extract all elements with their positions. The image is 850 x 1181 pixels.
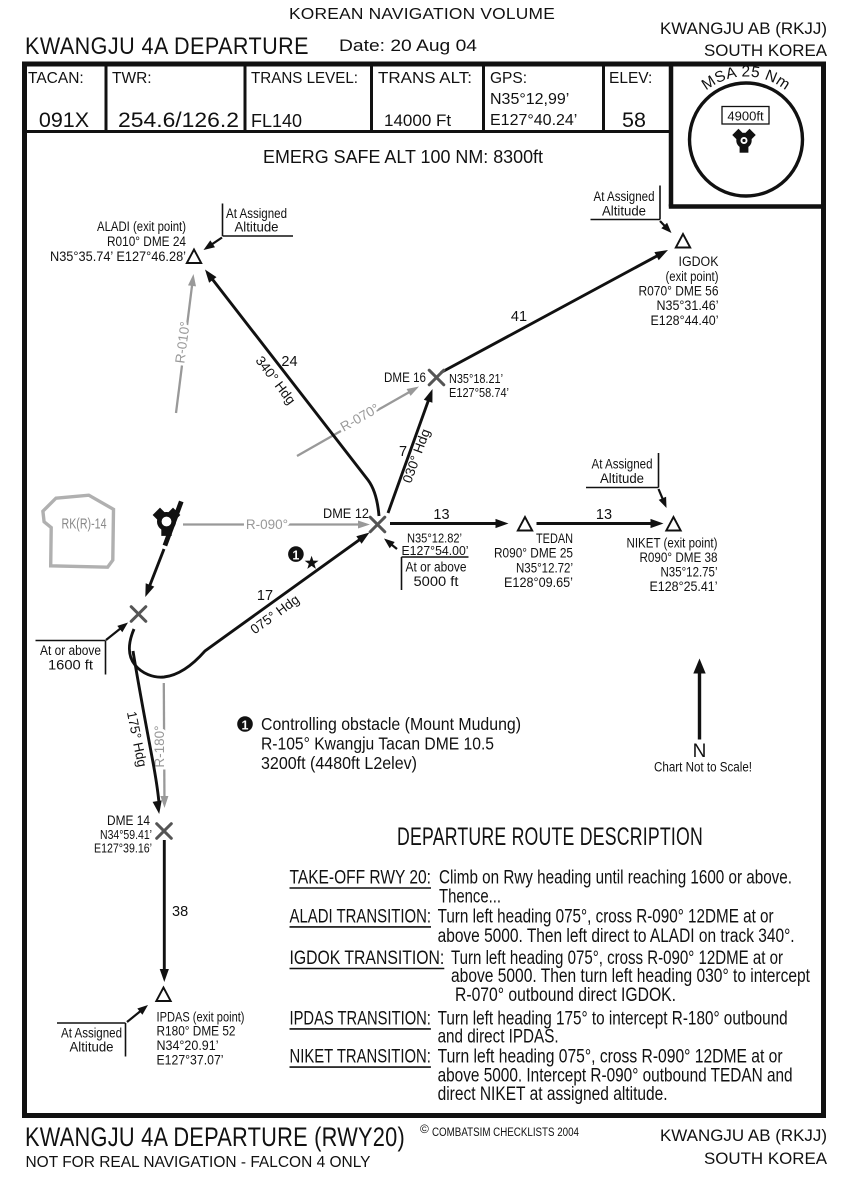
svg-text:E127°37.07’: E127°37.07’ — [157, 1053, 224, 1068]
svg-text:Altitude: Altitude — [600, 471, 644, 486]
svg-text:IPDAS (exit point): IPDAS (exit point) — [157, 1010, 245, 1025]
svg-text:N35°35.74’ E127°46.28’: N35°35.74’ E127°46.28’ — [50, 249, 186, 264]
svg-text:38: 38 — [172, 904, 188, 920]
svg-text:4900ft: 4900ft — [727, 109, 764, 124]
svg-text:N35°12.75’: N35°12.75’ — [661, 565, 718, 580]
svg-text:Altitude: Altitude — [235, 220, 279, 235]
svg-text:IPDAS TRANSITION:: IPDAS TRANSITION: — [290, 1008, 431, 1029]
svg-text:R180° DME 52: R180° DME 52 — [157, 1024, 236, 1039]
svg-text:DME 14: DME 14 — [107, 813, 150, 828]
svg-text:KWANGJU AB (RKJJ): KWANGJU AB (RKJJ) — [660, 19, 827, 38]
svg-text:E127°39.16’: E127°39.16’ — [94, 842, 152, 856]
svg-text:N35°31.46’: N35°31.46’ — [657, 298, 719, 313]
svg-text:5000 ft: 5000 ft — [414, 574, 459, 589]
svg-text:TRANS ALT:: TRANS ALT: — [378, 70, 472, 87]
svg-text:E128°25.41’: E128°25.41’ — [650, 579, 718, 594]
svg-text:©: © — [420, 1122, 429, 1136]
svg-text:ELEV:: ELEV: — [609, 70, 652, 87]
svg-text:and direct IPDAS.: and direct IPDAS. — [438, 1027, 559, 1048]
svg-text:N34°59.41’: N34°59.41’ — [100, 828, 152, 842]
svg-text:091X: 091X — [39, 108, 89, 132]
svg-text:7: 7 — [399, 444, 407, 460]
svg-text:TAKE-OFF RWY 20:: TAKE-OFF RWY 20: — [290, 868, 432, 889]
svg-text:24: 24 — [281, 354, 297, 370]
svg-text:Date: 20 Aug 04: Date: 20 Aug 04 — [339, 36, 477, 55]
svg-text:NIKET TRANSITION:: NIKET TRANSITION: — [290, 1047, 431, 1068]
svg-text:13: 13 — [433, 507, 449, 523]
svg-text:At or above: At or above — [40, 643, 101, 658]
svg-text:DME 12: DME 12 — [323, 505, 369, 521]
svg-text:RK(R)-14: RK(R)-14 — [62, 516, 107, 533]
svg-text:R-090°: R-090° — [246, 517, 288, 532]
svg-text:R-105° Kwangju Tacan DME 10.5: R-105° Kwangju Tacan DME 10.5 — [261, 734, 494, 754]
svg-text:14000 Ft: 14000 Ft — [384, 111, 451, 130]
svg-text:E127°58.74’: E127°58.74’ — [449, 386, 509, 400]
svg-text:254.6/126.2: 254.6/126.2 — [118, 108, 239, 132]
svg-text:E128°44.40’: E128°44.40’ — [651, 313, 719, 328]
svg-text:TEDAN: TEDAN — [536, 531, 573, 546]
svg-text:At Assigned: At Assigned — [61, 1026, 122, 1041]
svg-text:GPS:: GPS: — [490, 70, 527, 87]
svg-text:E127°40.24’: E127°40.24’ — [490, 112, 577, 129]
svg-text:At or above: At or above — [406, 560, 467, 575]
svg-text:FL140: FL140 — [251, 111, 302, 131]
svg-text:13: 13 — [596, 507, 612, 523]
svg-text:R010° DME 24: R010° DME 24 — [107, 234, 186, 249]
svg-text:DME 16: DME 16 — [384, 369, 426, 385]
svg-text:KOREAN NAVIGATION VOLUME: KOREAN NAVIGATION VOLUME — [289, 6, 555, 23]
svg-text:DEPARTURE ROUTE DESCRIPTION: DEPARTURE ROUTE DESCRIPTION — [397, 823, 703, 851]
svg-text:ALADI (exit point): ALADI (exit point) — [97, 219, 186, 234]
svg-text:COMBATSIM CHECKLISTS 2004: COMBATSIM CHECKLISTS 2004 — [432, 1127, 580, 1139]
svg-text:R-070° outbound direct IGDOK.: R-070° outbound direct IGDOK. — [455, 985, 676, 1006]
svg-text:Controlling obstacle (Mount Mu: Controlling obstacle (Mount Mudung) — [261, 714, 521, 734]
svg-text:direct NIKET at assigned altit: direct NIKET at assigned altitude. — [438, 1084, 668, 1105]
svg-text:SOUTH KOREA: SOUTH KOREA — [704, 1149, 828, 1168]
svg-text:Thence...: Thence... — [439, 886, 501, 907]
svg-text:58: 58 — [622, 108, 646, 132]
svg-text:KWANGJU AB (RKJJ): KWANGJU AB (RKJJ) — [660, 1126, 827, 1145]
svg-text:17: 17 — [257, 588, 273, 604]
svg-text:N35°18.21’: N35°18.21’ — [449, 372, 503, 386]
svg-text:At Assigned: At Assigned — [592, 457, 653, 472]
svg-text:1600 ft: 1600 ft — [48, 658, 93, 673]
svg-text:TWR:: TWR: — [112, 70, 152, 87]
svg-text:At Assigned: At Assigned — [594, 189, 655, 204]
svg-text:ALADI TRANSITION:: ALADI TRANSITION: — [290, 906, 432, 927]
svg-text:N35°12,99’: N35°12,99’ — [490, 91, 569, 108]
svg-text:E127°54.00’: E127°54.00’ — [402, 544, 469, 558]
svg-text:IGDOK: IGDOK — [679, 254, 719, 269]
svg-text:N35°12.72’: N35°12.72’ — [516, 561, 573, 576]
svg-text:R090° DME 25: R090° DME 25 — [494, 546, 573, 561]
svg-text:E128°09.65’: E128°09.65’ — [504, 575, 573, 590]
svg-text:41: 41 — [511, 309, 527, 325]
svg-text:3200ft (4480ft L2elev): 3200ft (4480ft L2elev) — [261, 753, 417, 773]
svg-text:Altitude: Altitude — [70, 1040, 114, 1055]
svg-text:NIKET (exit point): NIKET (exit point) — [627, 536, 718, 551]
svg-text:1: 1 — [292, 549, 299, 563]
svg-text:R090° DME 38: R090° DME 38 — [640, 550, 718, 565]
svg-text:(exit point): (exit point) — [666, 269, 719, 284]
svg-text:1: 1 — [242, 719, 249, 733]
svg-text:Turn left heading 075°, cross: Turn left heading 075°, cross R-090° 12D… — [438, 906, 775, 927]
svg-text:TRANS LEVEL:: TRANS LEVEL: — [251, 70, 358, 87]
svg-text:KWANGJU 4A DEPARTURE: KWANGJU 4A DEPARTURE — [25, 33, 309, 60]
svg-text:IGDOK TRANSITION:: IGDOK TRANSITION: — [290, 948, 445, 969]
svg-text:EMERG SAFE ALT 100 NM: 8300ft: EMERG SAFE ALT 100 NM: 8300ft — [263, 147, 543, 167]
svg-text:KWANGJU 4A DEPARTURE (RWY20): KWANGJU 4A DEPARTURE (RWY20) — [25, 1122, 405, 1152]
svg-text:Altitude: Altitude — [602, 204, 646, 219]
svg-text:Chart Not to Scale!: Chart Not to Scale! — [654, 760, 752, 775]
svg-text:above 5000. Then left direct t: above 5000. Then left direct to ALADI on… — [438, 926, 795, 947]
svg-text:NOT FOR REAL NAVIGATION - FALC: NOT FOR REAL NAVIGATION - FALCON 4 ONLY — [26, 1154, 371, 1171]
svg-text:TACAN:: TACAN: — [28, 70, 84, 87]
svg-text:N34°20.91’: N34°20.91’ — [157, 1038, 219, 1053]
svg-text:SOUTH KOREA: SOUTH KOREA — [704, 41, 828, 60]
svg-text:R070° DME 56: R070° DME 56 — [639, 284, 719, 299]
